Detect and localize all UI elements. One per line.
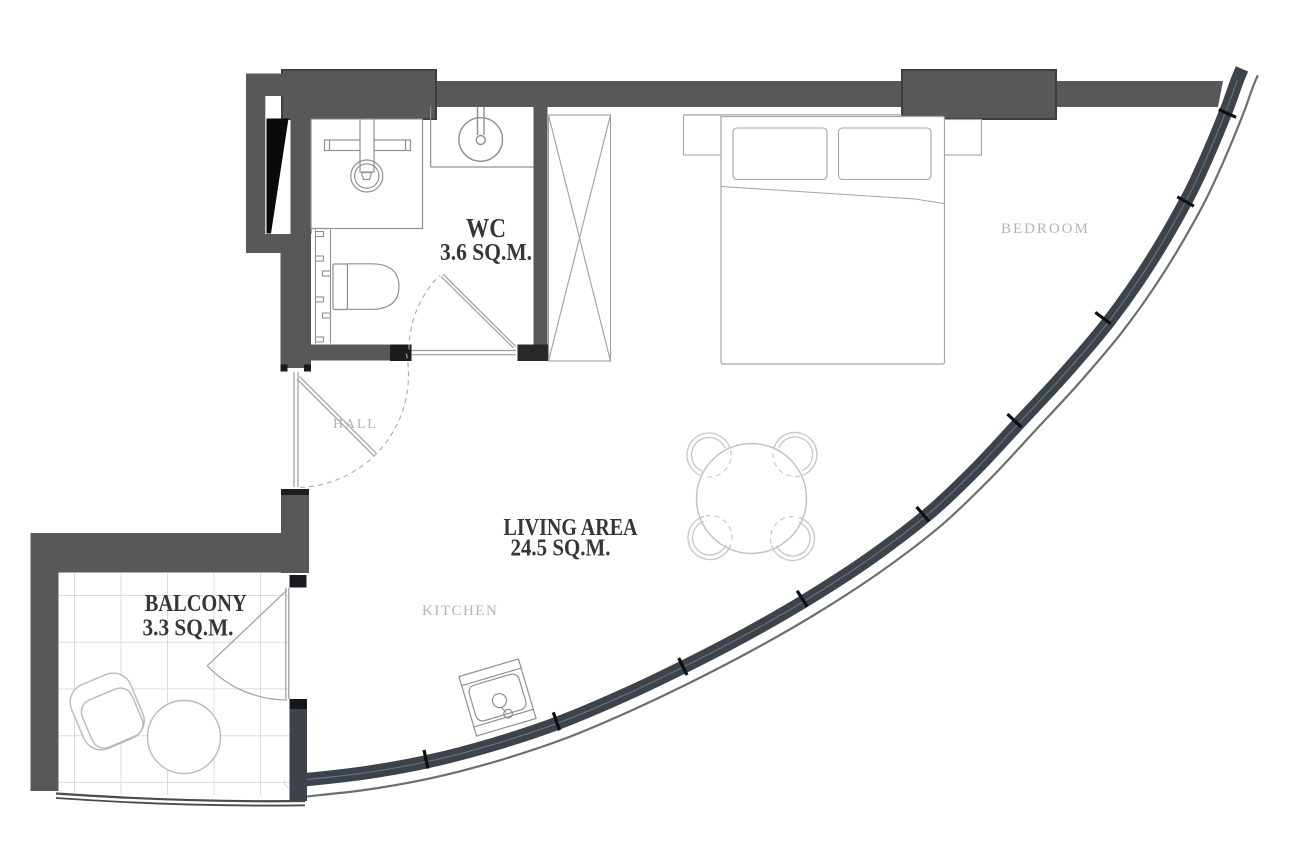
svg-text:HALL: HALL [333, 417, 378, 432]
svg-text:24.5 SQ.M.: 24.5 SQ.M. [511, 536, 611, 562]
svg-text:3.6 SQ.M.: 3.6 SQ.M. [440, 240, 532, 266]
svg-text:WC: WC [466, 213, 506, 243]
svg-text:BEDROOM: BEDROOM [1001, 221, 1090, 237]
svg-text:3.3 SQ.M.: 3.3 SQ.M. [143, 616, 234, 642]
svg-text:KITCHEN: KITCHEN [422, 603, 499, 619]
svg-text:BALCONY: BALCONY [145, 591, 247, 617]
